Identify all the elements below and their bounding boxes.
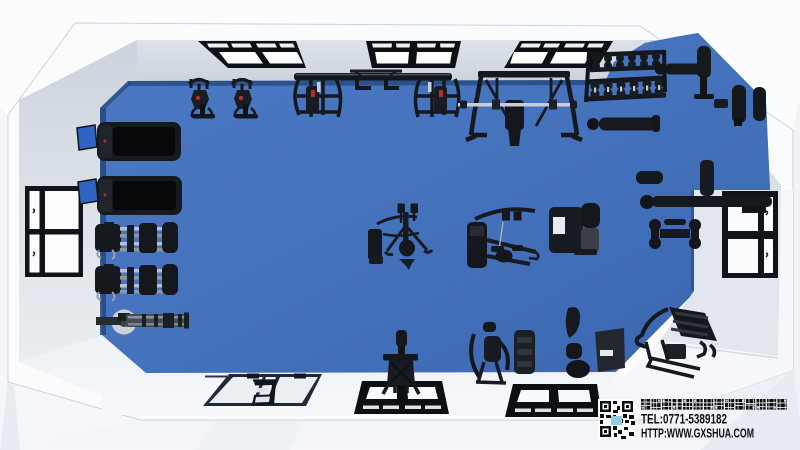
svg-text:HTTP:WWW.GXSHUA.COM: HTTP:WWW.GXSHUA.COM (641, 427, 754, 441)
svg-text:TEL:0771-5389182: TEL:0771-5389182 (641, 412, 727, 427)
